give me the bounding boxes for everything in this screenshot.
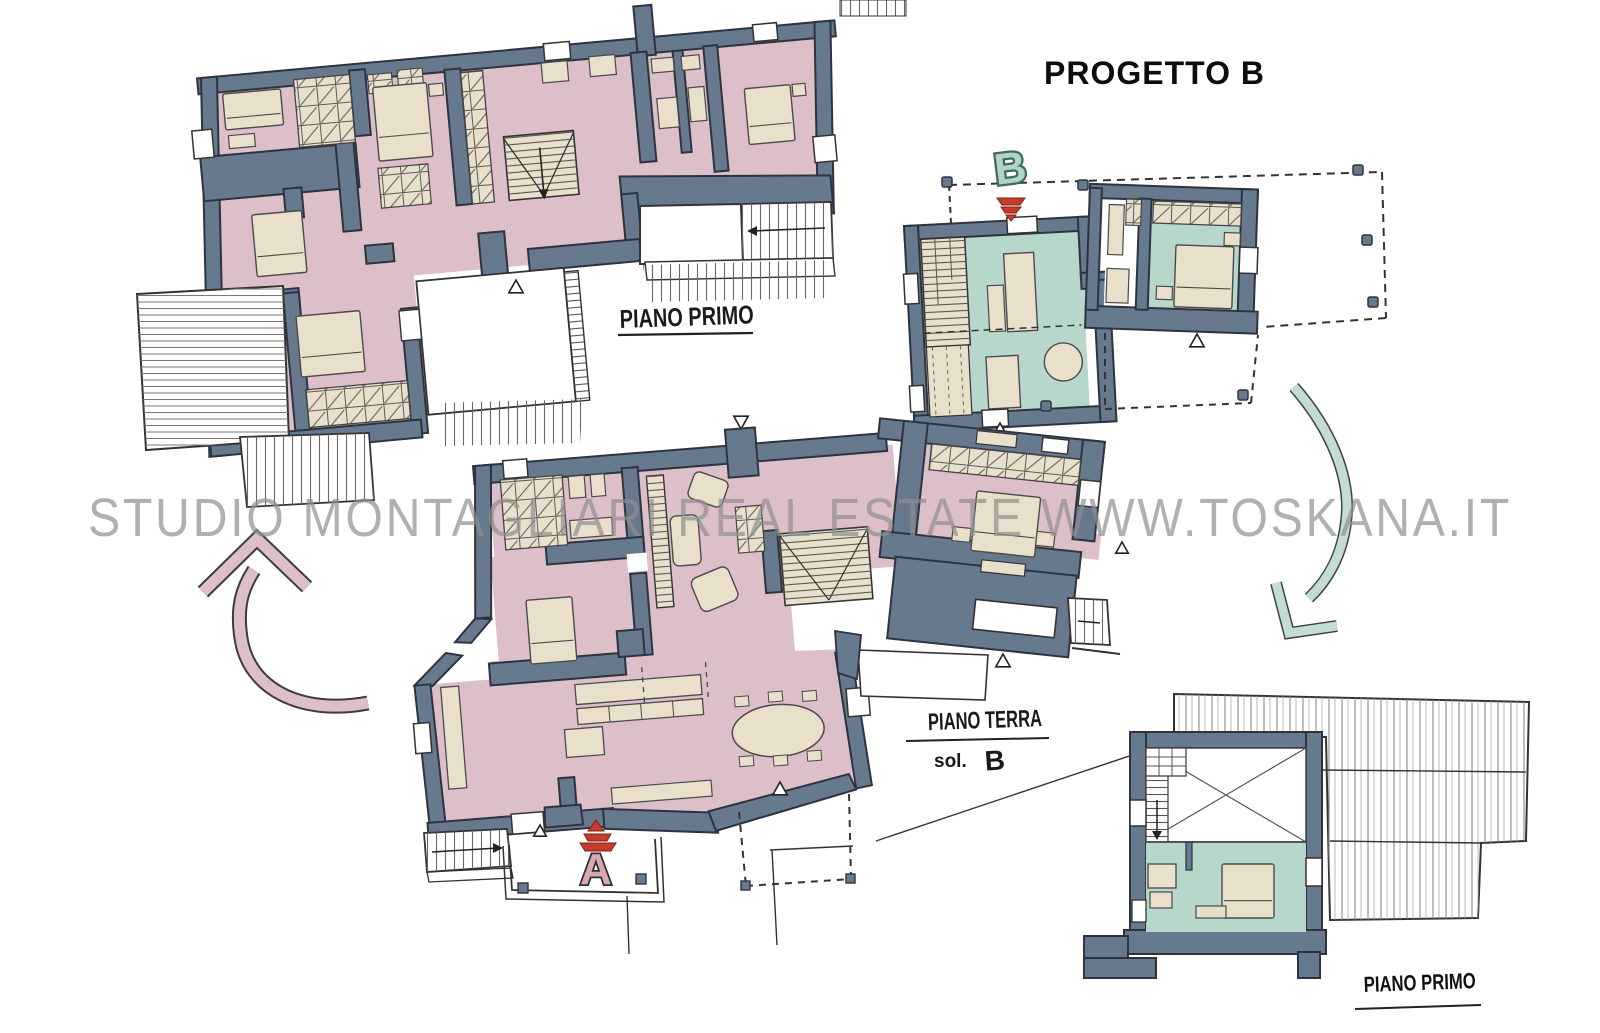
svg-text:B: B [984, 744, 1006, 776]
svg-text:STUDIO MONTAGLIARI REAL ESTAT: STUDIO MONTAGLIARI REAL ESTATE WWW.TOSKA… [88, 488, 1512, 548]
svg-text:A: A [580, 845, 612, 894]
svg-text:sol.: sol. [934, 751, 967, 772]
svg-text:PROGETTO B: PROGETTO B [1044, 55, 1265, 91]
svg-text:PIANO TERRA: PIANO TERRA [928, 705, 1043, 736]
svg-text:B: B [991, 142, 1029, 195]
svg-text:PIANO PRIMO: PIANO PRIMO [619, 299, 754, 334]
svg-text:PIANO PRIMO: PIANO PRIMO [1363, 968, 1476, 997]
